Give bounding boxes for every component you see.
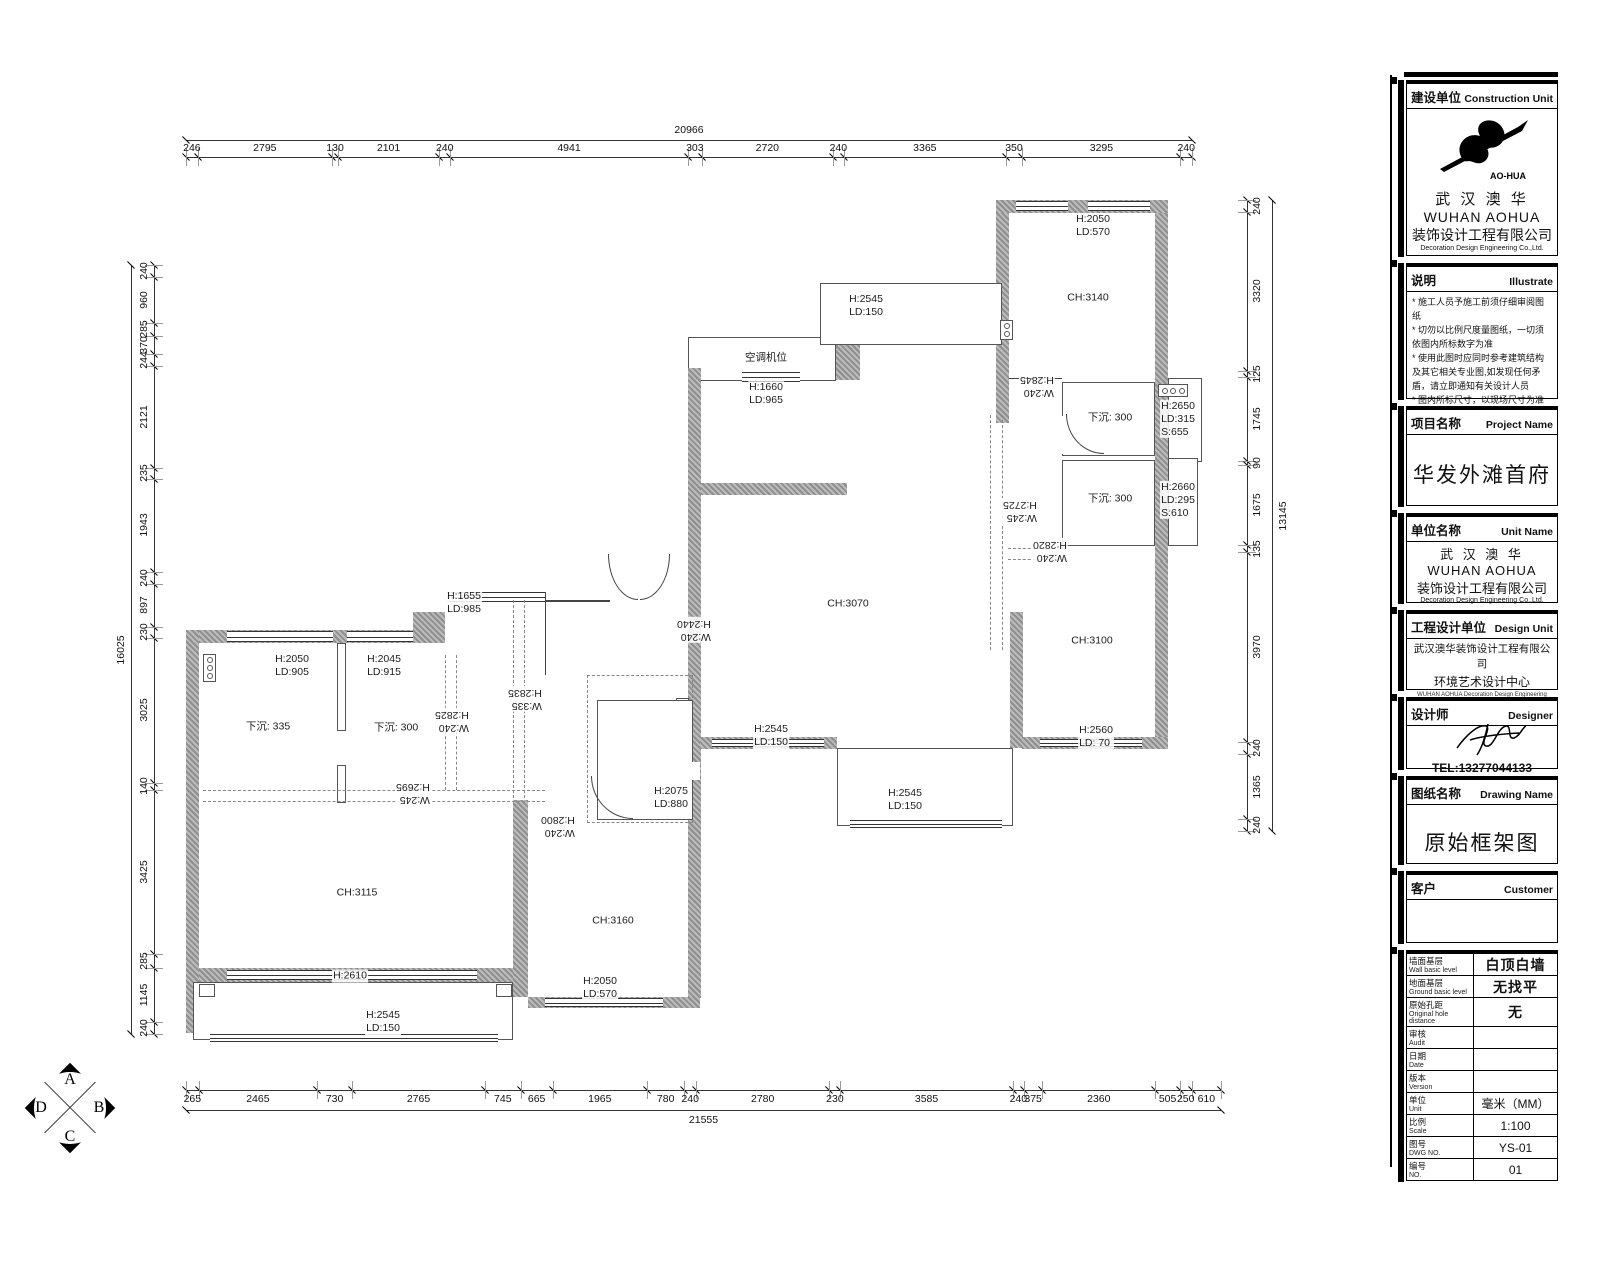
info-row-value: 无找平 xyxy=(1474,976,1557,997)
dimension-value: 2465 xyxy=(246,1093,269,1105)
customer-label-cn: 客户 xyxy=(1411,878,1436,897)
dimension-extension-line xyxy=(485,1081,486,1099)
dimension-value: 240 xyxy=(1251,816,1263,834)
plan-annotation: H:1655 LD:985 xyxy=(446,590,482,616)
info-row-value: YS-01 xyxy=(1474,1137,1557,1158)
info-label-en: Wall basic level xyxy=(1409,967,1471,974)
dimension-value: 240 xyxy=(1177,142,1195,154)
illustrate-note: * 施工人员予施工前须仔细审阅图纸 xyxy=(1412,296,1552,324)
dimension-total-value: 21555 xyxy=(689,1114,718,1126)
dimension-value: 1943 xyxy=(138,514,150,537)
dimension-value: 3320 xyxy=(1251,280,1263,303)
compass-letter-bottom: C xyxy=(65,1128,76,1146)
dimension-value: 2360 xyxy=(1087,1093,1110,1105)
plan-annotation: CH:3070 xyxy=(826,598,869,611)
info-row-label: 墙面基层Wall basic level xyxy=(1407,954,1474,975)
dimension-value: 230 xyxy=(138,623,150,641)
info-row: 单位Unit毫米（MM） xyxy=(1407,1092,1557,1114)
dimension-total-line xyxy=(186,1110,1221,1111)
info-row: 编号NO.01 xyxy=(1407,1158,1557,1180)
fixture xyxy=(1158,384,1188,397)
dimension-value: 240 xyxy=(681,1093,699,1105)
dimension-value: 1675 xyxy=(1251,493,1263,516)
dimension-value: 730 xyxy=(326,1093,344,1105)
info-row-value: 01 xyxy=(1474,1159,1557,1180)
dimension-value: 3025 xyxy=(138,699,150,722)
dimension-value: 250 xyxy=(1177,1093,1195,1105)
info-label-en: Scale xyxy=(1409,1128,1471,1135)
plan-annotation: H:2545 LD:150 xyxy=(365,1009,401,1035)
window xyxy=(1088,201,1150,211)
plan-annotation: W:240 H:2820 xyxy=(1032,538,1068,564)
info-label-cn: 审核 xyxy=(1409,1028,1471,1040)
dimension-value: 90 xyxy=(1251,457,1263,469)
design-unit-label-cn: 工程设计单位 xyxy=(1411,617,1486,636)
dimension-value: 2720 xyxy=(756,142,779,154)
dimension-value: 897 xyxy=(138,596,150,614)
dimension-value: 780 xyxy=(657,1093,675,1105)
project-name-label-cn: 项目名称 xyxy=(1411,413,1461,432)
dimension-value: 2121 xyxy=(138,405,150,428)
wall xyxy=(413,612,445,643)
dimension-line xyxy=(186,1090,1221,1091)
project-name-label-en: Project Name xyxy=(1486,419,1553,431)
info-row-label: 审核Audit xyxy=(1407,1027,1474,1048)
dimension-extension-line xyxy=(1155,1081,1156,1099)
aohua-logo: AO-HUA xyxy=(1430,113,1534,183)
dimension-total-line xyxy=(131,265,132,1034)
dimension-value: 3585 xyxy=(915,1093,938,1105)
dimension-value: 240 xyxy=(436,142,454,154)
construction-unit-label-cn: 建设单位 xyxy=(1411,87,1461,106)
unit-company-cn: 武 汉 澳 华 xyxy=(1409,544,1555,563)
info-row-label: 版本Version xyxy=(1407,1071,1474,1092)
dimension-value: 240 xyxy=(138,262,150,280)
door-arc xyxy=(608,554,638,600)
logo-caption: AO-HUA xyxy=(1490,171,1526,181)
info-row-value xyxy=(1474,1049,1557,1070)
info-row-value xyxy=(1474,1071,1557,1092)
dimension-extension-line xyxy=(352,1081,353,1099)
info-label-cn: 日期 xyxy=(1409,1050,1471,1062)
info-label-cn: 地面基层 xyxy=(1409,977,1471,989)
section-design-unit: 工程设计单位 Design Unit 武汉澳华装饰设计工程有限公司 环境艺术设计… xyxy=(1406,610,1558,690)
dimension-extension-line xyxy=(553,1081,554,1099)
unit-company-en2: Decoration Design Engineering Co.,Ltd. xyxy=(1409,597,1555,604)
plan-annotation: 下沉: 300 xyxy=(1087,493,1133,506)
section-customer: 客户 Customer xyxy=(1406,871,1558,943)
window xyxy=(227,631,333,642)
dimension-value: 1745 xyxy=(1251,407,1263,430)
line xyxy=(545,592,546,675)
info-row-value: 1:100 xyxy=(1474,1115,1557,1136)
outline-box xyxy=(496,984,512,997)
info-row-value: 毫米（MM） xyxy=(1474,1093,1557,1114)
dimension-value: 350 xyxy=(1005,142,1023,154)
unit-name-label-cn: 单位名称 xyxy=(1411,520,1461,539)
info-label-cn: 墙面基层 xyxy=(1409,955,1471,967)
window xyxy=(1016,201,1068,211)
dimension-value: 665 xyxy=(528,1093,546,1105)
dashed-line xyxy=(990,415,992,650)
info-row-value xyxy=(1474,1027,1557,1048)
section-project-name: 项目名称 Project Name 华发外滩首府 xyxy=(1406,406,1558,506)
dimension-value: 1145 xyxy=(138,984,150,1007)
title-block-top-bar xyxy=(1404,72,1558,77)
compass-letter-left: D xyxy=(35,1099,47,1117)
wall xyxy=(186,630,199,1033)
info-row: 图号DWG NO.YS-01 xyxy=(1407,1136,1557,1158)
plan-annotation: CH:3115 xyxy=(336,887,379,900)
plan-annotation: H:2560 LD: 70 xyxy=(1078,724,1114,750)
info-row: 地面基层Ground basic level无找平 xyxy=(1407,975,1557,997)
info-label-en: Date xyxy=(1409,1062,1471,1069)
plan-annotation: W:335 H:2835 xyxy=(507,686,543,712)
dimension-value: 246 xyxy=(183,142,201,154)
illustrate-label-en: Illustrate xyxy=(1509,276,1553,288)
designer-tel: TEL:13277044133 xyxy=(1407,761,1557,777)
title-block: 建设单位 Construction Unit AO-HUA 武 汉 澳 华 WU… xyxy=(1406,80,1558,1188)
company-name-en: WUHAN AOHUA xyxy=(1409,209,1555,225)
wall xyxy=(1010,612,1023,748)
outline-box xyxy=(337,765,346,803)
plan-annotation: 下沉: 335 xyxy=(245,721,291,734)
info-row: 版本Version xyxy=(1407,1070,1557,1092)
dimension-value: 1965 xyxy=(588,1093,611,1105)
dimension-value: 2780 xyxy=(751,1093,774,1105)
dimension-value: 3970 xyxy=(1251,635,1263,658)
dimension-value: 303 xyxy=(686,142,704,154)
info-label-cn: 原始孔距 xyxy=(1409,999,1471,1011)
info-label-en: DWG NO. xyxy=(1409,1150,1471,1157)
plan-annotation: CH:3160 xyxy=(591,915,634,928)
dimension-value: 240 xyxy=(138,569,150,587)
dimension-extension-line xyxy=(521,1081,522,1099)
fixture xyxy=(1000,320,1013,340)
info-row: 墙面基层Wall basic level白顶白墙 xyxy=(1407,954,1557,975)
plan-annotation: H:2545 LD:150 xyxy=(848,293,884,319)
drawing-sheet: { "compass": {"top": "A", "right": "B", … xyxy=(0,0,1600,1279)
dimension-extension-line xyxy=(647,1081,648,1099)
dimension-value: 610 xyxy=(1198,1093,1216,1105)
drawing-name-label-en: Drawing Name xyxy=(1480,789,1553,801)
wall xyxy=(701,483,847,495)
section-illustrate: 说明 Illustrate * 施工人员予施工前须仔细审阅图纸* 切勿以比例尺度… xyxy=(1406,263,1558,399)
plan-annotation: W:240 H:2800 xyxy=(540,813,576,839)
info-row: 原始孔距Original hole distance无 xyxy=(1407,997,1557,1026)
floor-plan: H:2545 LD:150空调机位H:1660 LD:965H:2050 LD:… xyxy=(0,0,1400,1279)
window xyxy=(850,820,1002,828)
dimension-value: 375 xyxy=(1024,1093,1042,1105)
fixture xyxy=(203,654,216,682)
plan-annotation: 下沉: 300 xyxy=(373,722,419,735)
design-unit-line1: 武汉澳华装饰设计工程有限公司 xyxy=(1409,641,1555,671)
info-row-value: 无 xyxy=(1474,998,1557,1026)
section-unit-name: 单位名称 Unit Name 武 汉 澳 华 WUHAN AOHUA 装饰设计工… xyxy=(1406,513,1558,603)
wall xyxy=(513,800,528,997)
plan-annotation: W:240 H:2825 xyxy=(434,708,470,734)
plan-annotation: H:2050 LD:570 xyxy=(582,975,618,1001)
dashed-line xyxy=(203,790,545,792)
door-arc xyxy=(640,554,670,600)
info-label-en: Ground basic level xyxy=(1409,989,1471,996)
dimension-value: 265 xyxy=(184,1093,202,1105)
designer-signature xyxy=(1427,720,1537,756)
info-label-cn: 编号 xyxy=(1409,1160,1471,1172)
section-info-table: 墙面基层Wall basic level白顶白墙地面基层Ground basic… xyxy=(1406,950,1558,1181)
compass-letter-top: A xyxy=(64,1071,76,1089)
plan-annotation: H:2610 xyxy=(332,970,368,983)
dimension-value: 140 xyxy=(138,777,150,795)
plan-annotation: H:1660 LD:965 xyxy=(748,381,784,407)
section-designer: 设计师 Designer TEL:13277044133 xyxy=(1406,697,1558,769)
dimension-value: 2795 xyxy=(253,142,276,154)
info-row-label: 地面基层Ground basic level xyxy=(1407,976,1474,997)
design-unit-label-en: Design Unit xyxy=(1495,623,1553,635)
info-label-en: Unit xyxy=(1409,1106,1471,1113)
dashed-line xyxy=(1002,415,1004,650)
outline-box xyxy=(337,643,346,731)
unit-name-label-en: Unit Name xyxy=(1501,526,1553,538)
plan-annotation: H:2045 LD:915 xyxy=(366,653,402,679)
wall-opening xyxy=(689,762,700,780)
plan-annotation: H:2545 LD:150 xyxy=(887,787,923,813)
dimension-value: 244 xyxy=(138,351,150,369)
dimension-value: 240 xyxy=(830,142,848,154)
dimension-value: 3425 xyxy=(138,860,150,883)
construction-unit-label-en: Construction Unit xyxy=(1464,93,1553,105)
wall-opening xyxy=(1060,416,1065,454)
section-drawing-name: 图纸名称 Drawing Name 原始框架图 xyxy=(1406,776,1558,864)
plan-annotation: CH:3140 xyxy=(1066,292,1109,305)
dimension-value: 4941 xyxy=(557,142,580,154)
company-name-cn: 武 汉 澳 华 xyxy=(1409,188,1555,209)
dimension-value: 960 xyxy=(138,291,150,309)
dimension-value: 240 xyxy=(1251,739,1263,757)
dimension-total-value: 16025 xyxy=(115,635,127,664)
dimension-value: 125 xyxy=(1251,365,1263,383)
info-label-cn: 单位 xyxy=(1409,1094,1471,1106)
plan-annotation: H:2650 LD:315 S:655 xyxy=(1160,400,1196,438)
outline-box xyxy=(193,982,513,1040)
info-row-label: 比例Scale xyxy=(1407,1115,1474,1136)
plan-annotation: W:240 H:2845 xyxy=(1019,373,1055,399)
info-row-label: 原始孔距Original hole distance xyxy=(1407,998,1474,1026)
outline-box xyxy=(199,984,215,997)
info-label-en: Audit xyxy=(1409,1040,1471,1047)
plan-annotation: W:240 H:2440 xyxy=(676,617,712,643)
dimension-value: 505 xyxy=(1159,1093,1177,1105)
plan-annotation: H:2660 LD:295 S:610 xyxy=(1160,481,1196,519)
drawing-name-label-cn: 图纸名称 xyxy=(1411,783,1461,802)
dimension-total-line xyxy=(186,140,1192,141)
plan-annotation: CH:3100 xyxy=(1070,635,1113,648)
illustrate-note: * 使用此图时应同时参考建筑结构及其它相关专业图,如发现任何矛盾，请立即通知有关… xyxy=(1412,352,1552,394)
section-construction-unit: 建设单位 Construction Unit AO-HUA 武 汉 澳 华 WU… xyxy=(1406,80,1558,256)
info-label-cn: 版本 xyxy=(1409,1072,1471,1084)
dimension-value: 130 xyxy=(326,142,344,154)
drawing-name-value: 原始框架图 xyxy=(1407,805,1557,881)
dimension-value: 1365 xyxy=(1251,775,1263,798)
dimension-extension-line xyxy=(317,1081,318,1099)
customer-label-en: Customer xyxy=(1504,884,1553,896)
illustrate-note: * 切勿以比例尺度量图纸，一切须依图内所标数字为准 xyxy=(1412,324,1552,352)
info-label-en: NO. xyxy=(1409,1172,1471,1179)
info-row-label: 单位Unit xyxy=(1407,1093,1474,1114)
dimension-line xyxy=(154,265,155,1034)
dimension-total-line xyxy=(1272,200,1273,831)
plan-annotation: W:245 H:2695 xyxy=(395,780,431,806)
dashed-line xyxy=(203,801,545,803)
info-row: 日期Date xyxy=(1407,1048,1557,1070)
plan-annotation: H:2050 LD:570 xyxy=(1075,213,1111,239)
plan-annotation: 下沉: 300 xyxy=(1087,412,1133,425)
info-row: 审核Audit xyxy=(1407,1026,1557,1048)
dimension-value: 240 xyxy=(1251,197,1263,215)
dimension-value: 230 xyxy=(826,1093,844,1105)
unit-company-cn2: 装饰设计工程有限公司 xyxy=(1409,578,1555,597)
window xyxy=(347,631,413,642)
dimension-value: 745 xyxy=(494,1093,512,1105)
dimension-total-value: 20966 xyxy=(674,124,703,136)
dimension-value: 3295 xyxy=(1090,142,1113,154)
customer-value xyxy=(1407,900,1557,908)
dimension-value: 3365 xyxy=(913,142,936,154)
project-name-value: 华发外滩首府 xyxy=(1407,435,1557,515)
info-table: 墙面基层Wall basic level白顶白墙地面基层Ground basic… xyxy=(1407,954,1557,1180)
compass-letter-right: B xyxy=(94,1099,105,1117)
company-name-cn2: 装饰设计工程有限公司 xyxy=(1409,225,1555,245)
info-label-cn: 图号 xyxy=(1409,1138,1471,1150)
outline-box xyxy=(837,748,1013,826)
dimension-extension-line xyxy=(1221,1081,1222,1099)
dimension-value: 235 xyxy=(138,464,150,482)
info-row-label: 图号DWG NO. xyxy=(1407,1137,1474,1158)
info-label-cn: 比例 xyxy=(1409,1116,1471,1128)
plan-annotation: 空调机位 xyxy=(744,352,788,365)
wall xyxy=(1155,561,1168,749)
info-label-en: Original hole distance xyxy=(1409,1011,1471,1025)
dimension-value: 2765 xyxy=(407,1093,430,1105)
info-label-en: Version xyxy=(1409,1084,1471,1091)
line xyxy=(545,600,610,602)
title-block-frame-line xyxy=(1390,75,1392,1167)
unit-company-en: WUHAN AOHUA xyxy=(1409,563,1555,578)
design-unit-line2: 环境艺术设计中心 xyxy=(1409,673,1555,690)
company-name-en2: Decoration Design Engineering Co.,Ltd. xyxy=(1409,245,1555,252)
window xyxy=(210,1034,498,1042)
plan-annotation: H:2050 LD:905 xyxy=(274,653,310,679)
dimension-line xyxy=(1247,200,1248,831)
info-row: 比例Scale1:100 xyxy=(1407,1114,1557,1136)
info-row-label: 日期Date xyxy=(1407,1049,1474,1070)
info-row-value: 白顶白墙 xyxy=(1474,954,1557,975)
dimension-value: 240 xyxy=(138,1019,150,1037)
illustrate-label-cn: 说明 xyxy=(1411,270,1436,289)
dimension-value: 2101 xyxy=(377,142,400,154)
plan-annotation: H:2545 LD:150 xyxy=(753,723,789,749)
info-row-label: 编号NO. xyxy=(1407,1159,1474,1180)
dimension-value: 135 xyxy=(1251,540,1263,558)
plan-annotation: H:2075 LD:880 xyxy=(653,785,689,811)
dimension-value: 285 xyxy=(138,952,150,970)
dimension-total-value: 13145 xyxy=(1277,501,1289,530)
orientation-compass: A B C D xyxy=(22,1060,118,1156)
plan-annotation: W:245 H:2725 xyxy=(1002,498,1038,524)
